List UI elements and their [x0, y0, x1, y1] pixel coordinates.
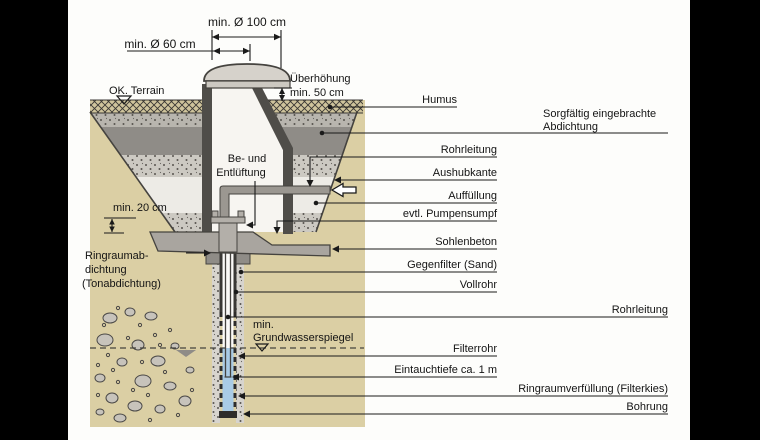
- label-pipe2: Rohrleitung: [612, 304, 668, 316]
- chamber-wall-left: [202, 84, 212, 234]
- letterbox-right: [690, 0, 760, 440]
- label-excavation-edge: Aushubkante: [433, 167, 497, 179]
- label-ringseal-1: Ringraumab-: [85, 250, 149, 262]
- diagram-canvas: min. Ø 100 cm min. Ø 60 cm OK. Terrain Ü…: [0, 0, 760, 440]
- well-water: [223, 348, 234, 411]
- label-vent-1: Be- und: [228, 153, 267, 165]
- label-overheight-1: Überhöhung: [290, 73, 351, 85]
- label-counter-filter: Gegenfilter (Sand): [407, 259, 497, 271]
- wellhead-casing: [219, 223, 237, 252]
- label-base-concrete: Sohlenbeton: [435, 236, 497, 248]
- label-dia60: min. Ø 60 cm: [124, 37, 195, 51]
- cover-plate: [206, 81, 290, 88]
- label-filter-pipe: Filterrohr: [453, 343, 497, 355]
- label-pipe1: Rohrleitung: [441, 144, 497, 156]
- label-sealing-2: Abdichtung: [543, 121, 598, 133]
- label-immersion-depth: Eintauchtiefe ca. 1 m: [394, 364, 497, 376]
- solid-pipe-wall-right: [234, 252, 237, 312]
- label-ringseal-2: dichtung: [85, 264, 127, 276]
- label-groundwater-2: Grundwasserspiegel: [253, 332, 353, 344]
- label-borehole: Bohrung: [626, 401, 668, 413]
- label-annulus-fill: Ringraumverfüllung (Filterkies): [518, 383, 668, 395]
- annulus-gravel-left: [212, 250, 220, 423]
- wellhead-flange: [211, 217, 245, 223]
- label-humus: Humus: [422, 94, 457, 106]
- label-overheight-2: min. 50 cm: [290, 87, 344, 99]
- shaft-cover: [204, 64, 290, 88]
- solid-pipe-wall-left: [220, 252, 223, 312]
- label-terrain: OK. Terrain: [109, 85, 164, 97]
- label-ringseal-3: (Tonabdichtung): [82, 278, 161, 290]
- label-vent-2: Entlüftung: [216, 167, 266, 179]
- label-backfill: Auffüllung: [448, 190, 497, 202]
- label-sealing-1: Sorgfältig eingebrachte: [543, 108, 656, 120]
- label-groundwater-1: min.: [253, 319, 274, 331]
- label-pump-sump: evtl. Pumpensumpf: [403, 208, 498, 220]
- label-min20: min. 20 cm: [113, 202, 167, 214]
- label-solid-pipe: Vollrohr: [460, 279, 498, 291]
- letterbox-left: [0, 0, 68, 440]
- label-dia100: min. Ø 100 cm: [208, 15, 286, 29]
- well-cross-section-diagram: min. Ø 100 cm min. Ø 60 cm OK. Terrain Ü…: [0, 0, 760, 440]
- pipe-bottom-cap: [219, 411, 237, 418]
